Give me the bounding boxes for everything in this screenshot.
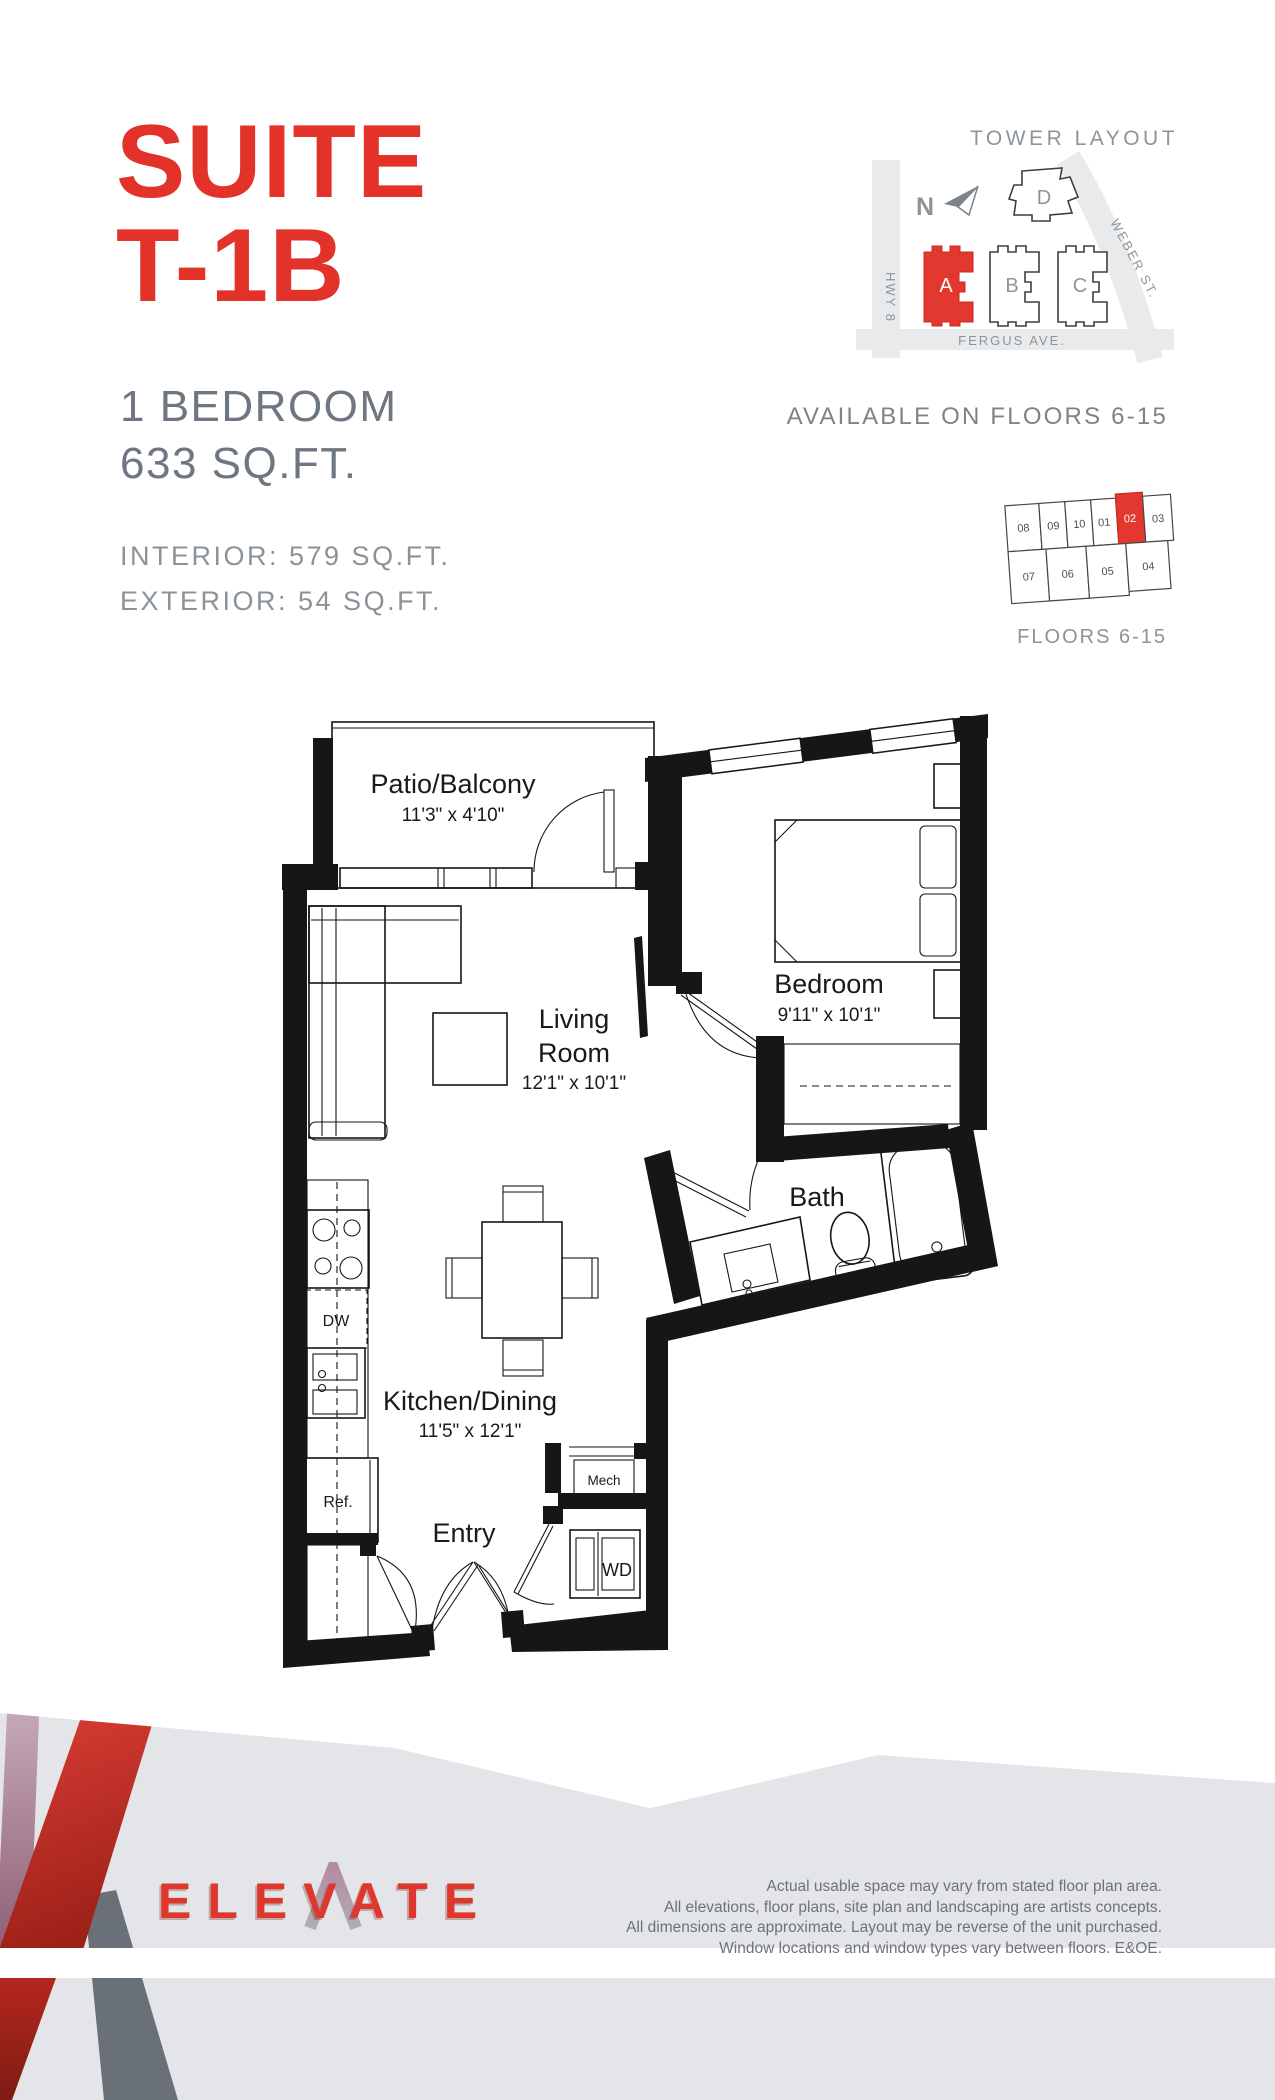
building-b-label: B (1005, 275, 1018, 297)
bedroom-door-leaf (681, 995, 757, 1049)
tower-layout-title: TOWER LAYOUT (970, 127, 1178, 150)
road-fergus-label: FERGUS AVE. (958, 333, 1066, 348)
faucet (319, 1371, 326, 1378)
burner (313, 1219, 335, 1241)
burner (344, 1220, 360, 1236)
wd-door-swing (514, 1592, 554, 1604)
floor-plate-diagram: 08 09 10 01 02 03 07 06 05 04 (995, 478, 1185, 608)
disclaimer: Actual usable space may vary from stated… (626, 1877, 1162, 1959)
bedroom-window (870, 719, 956, 753)
availability-headline: AVAILABLE ON FLOORS 6-15 (787, 403, 1168, 431)
bath-label: Bath (789, 1182, 845, 1212)
floors-caption: FLOORS 6-15 (1017, 626, 1167, 649)
dining-table (482, 1222, 562, 1338)
nightstand (934, 970, 964, 1018)
area-breakdown: INTERIOR: 579 SQ.FT. EXTERIOR: 54 SQ.FT. (120, 534, 451, 624)
north-label: N (916, 193, 934, 221)
kitchen-door-leaf (377, 1556, 414, 1634)
dining-chair (562, 1258, 598, 1298)
patio-label: Patio/Balcony (370, 769, 536, 799)
unit-05-label: 05 (1101, 565, 1114, 578)
building-d-label: D (1037, 187, 1051, 209)
unit-08-label: 08 (1017, 522, 1030, 535)
tv (634, 936, 648, 1038)
unit-06-label: 06 (1061, 568, 1074, 581)
entry-label: Entry (432, 1518, 496, 1548)
ref-label: Ref. (323, 1494, 352, 1511)
dining-chair (503, 1186, 543, 1222)
disclaimer-line: All dimensions are approximate. Layout m… (626, 1918, 1162, 1939)
wall-patio-left (313, 738, 333, 868)
wall-bath-top (762, 1124, 950, 1162)
entry-door-leaf (474, 1562, 508, 1616)
patio-side-window (616, 868, 638, 888)
bedroom-dims: 9'11" x 10'1" (778, 1005, 881, 1026)
unit-04-label: 04 (1142, 561, 1155, 574)
unit-07-label: 07 (1022, 571, 1035, 584)
north-arrow-icon (944, 186, 978, 215)
building-c-footprint: C (1058, 246, 1107, 326)
wd-left-unit (576, 1538, 594, 1590)
door-post (411, 1624, 435, 1652)
patio-dims: 11'3" x 4'10" (402, 805, 505, 826)
living-dims: 12'1" x 10'1" (522, 1073, 626, 1094)
suite-title-line2: T-1B (116, 214, 427, 318)
building-b-footprint: B (990, 246, 1039, 326)
door-post (634, 1443, 648, 1459)
unit-09-label: 09 (1047, 520, 1060, 533)
tower-layout-map: TOWER LAYOUT HWY 8 FERGUS AVE. WEBER ST.… (850, 90, 1180, 380)
wd-door-leaf (514, 1524, 549, 1592)
burner (315, 1258, 331, 1274)
wd-door-leaf (518, 1526, 553, 1594)
sink-bowl (313, 1390, 357, 1414)
closet (784, 1044, 960, 1124)
kitchen-sink (307, 1348, 365, 1418)
bed-fold (775, 940, 797, 962)
building-c-label: C (1073, 275, 1087, 297)
bed (775, 820, 962, 962)
road-hwy8 (872, 160, 900, 358)
kitchen-label: Kitchen/Dining (383, 1386, 557, 1416)
door-post (501, 1610, 525, 1638)
mech-label: Mech (587, 1473, 620, 1488)
coffee-table (433, 1013, 507, 1085)
unit-02-label: 02 (1124, 513, 1137, 526)
floor-plan: Patio/Balcony 11'3" x 4'10" Bedroom 9'11… (270, 680, 1020, 1680)
unit-10-label: 10 (1073, 518, 1086, 531)
pillow (920, 826, 956, 888)
total-area: 633 SQ.FT. (120, 435, 398, 492)
patio-door-swing (534, 792, 604, 872)
bedroom-window (709, 738, 803, 773)
wd-label: WD (602, 1560, 632, 1580)
wall-bath-left (644, 1150, 700, 1304)
wall-living-bedroom (648, 756, 682, 986)
disclaimer-line: Window locations and window types vary b… (626, 1939, 1162, 1960)
wall-right-lower (646, 1314, 668, 1640)
dining-chair (446, 1258, 482, 1298)
wall-closet-left (756, 1036, 784, 1162)
nightstand (934, 764, 964, 808)
living-label-line2: Room (538, 1038, 610, 1068)
road-hwy8-label: HWY 8 (883, 272, 898, 323)
exterior-area: EXTERIOR: 54 SQ.FT. (120, 579, 451, 624)
bedroom-count: 1 BEDROOM (120, 378, 398, 435)
bedroom-label: Bedroom (774, 969, 884, 999)
building-a-footprint: A (924, 246, 973, 326)
brochure-page: SUITE T-1B 1 BEDROOM 633 SQ.FT. INTERIOR… (0, 0, 1275, 2100)
living-window-wall (340, 868, 532, 888)
suite-title-line1: SUITE (116, 110, 427, 214)
sofa (309, 906, 385, 1138)
wall-mech-left (545, 1443, 561, 1493)
bed-fold (775, 820, 797, 842)
kitchen-dims: 11'5" x 12'1" (419, 1421, 522, 1442)
suite-type: 1 BEDROOM 633 SQ.FT. (120, 378, 398, 492)
elevate-logo: ELEVATE (158, 1872, 493, 1930)
logo-wordmark: ELEVATE (158, 1873, 493, 1929)
interior-area: INTERIOR: 579 SQ.FT. (120, 534, 451, 579)
door-post (543, 1506, 563, 1524)
entry-door-leaf (479, 1566, 512, 1619)
dining-chair (503, 1340, 543, 1376)
unit-03-label: 03 (1152, 513, 1165, 526)
disclaimer-line: Actual usable space may vary from stated… (626, 1877, 1162, 1898)
vanity-faucet (743, 1280, 751, 1288)
unit-01-label: 01 (1098, 517, 1111, 530)
suite-title: SUITE T-1B (116, 110, 427, 318)
wall-bottom-right (509, 1608, 668, 1652)
door-post (676, 972, 702, 994)
dw-label: DW (323, 1313, 351, 1330)
pillow (920, 894, 956, 956)
wall-left-outer (283, 864, 307, 1646)
entry-door-leaf (429, 1562, 473, 1628)
living-label-line1: Living (539, 1004, 610, 1034)
patio-door-leaf (604, 790, 614, 872)
burner (340, 1257, 362, 1279)
disclaimer-line: All elevations, floor plans, site plan a… (626, 1898, 1162, 1919)
building-a-label: A (939, 275, 953, 297)
